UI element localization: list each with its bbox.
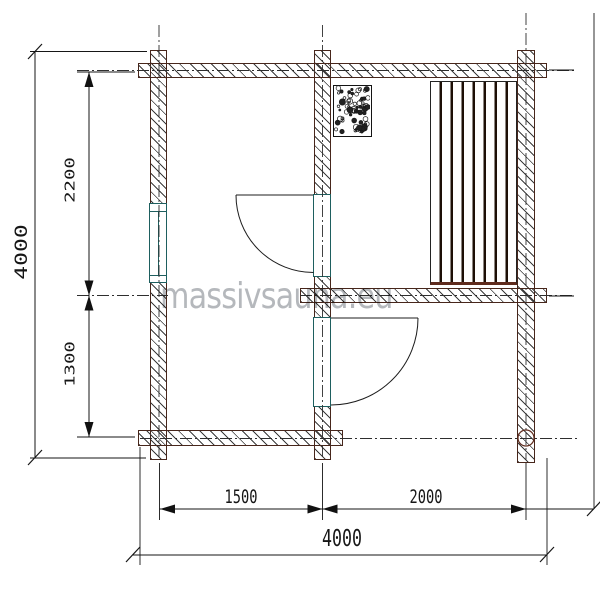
dimension-arrows — [85, 72, 527, 514]
dimension-lines — [35, 52, 547, 556]
dimension-overlay — [0, 0, 600, 600]
doors — [236, 195, 418, 405]
dim-upper-room-height: 2200 — [62, 157, 78, 203]
dim-left-room-width: 1500 — [225, 486, 258, 508]
dimension-ticks — [28, 44, 600, 562]
dim-right-room-width: 2000 — [410, 486, 443, 508]
dim-overall-height: 4000 — [13, 224, 32, 279]
upper-door-swing-arc — [236, 195, 314, 273]
dim-lower-room-height: 1300 — [62, 341, 78, 387]
centerlines — [77, 13, 578, 460]
lower-door-swing-arc — [331, 318, 418, 405]
floor-plan-canvas: massivsauna.eu — [0, 0, 600, 600]
extension-lines — [30, 13, 594, 565]
dim-overall-width: 4000 — [322, 526, 362, 552]
